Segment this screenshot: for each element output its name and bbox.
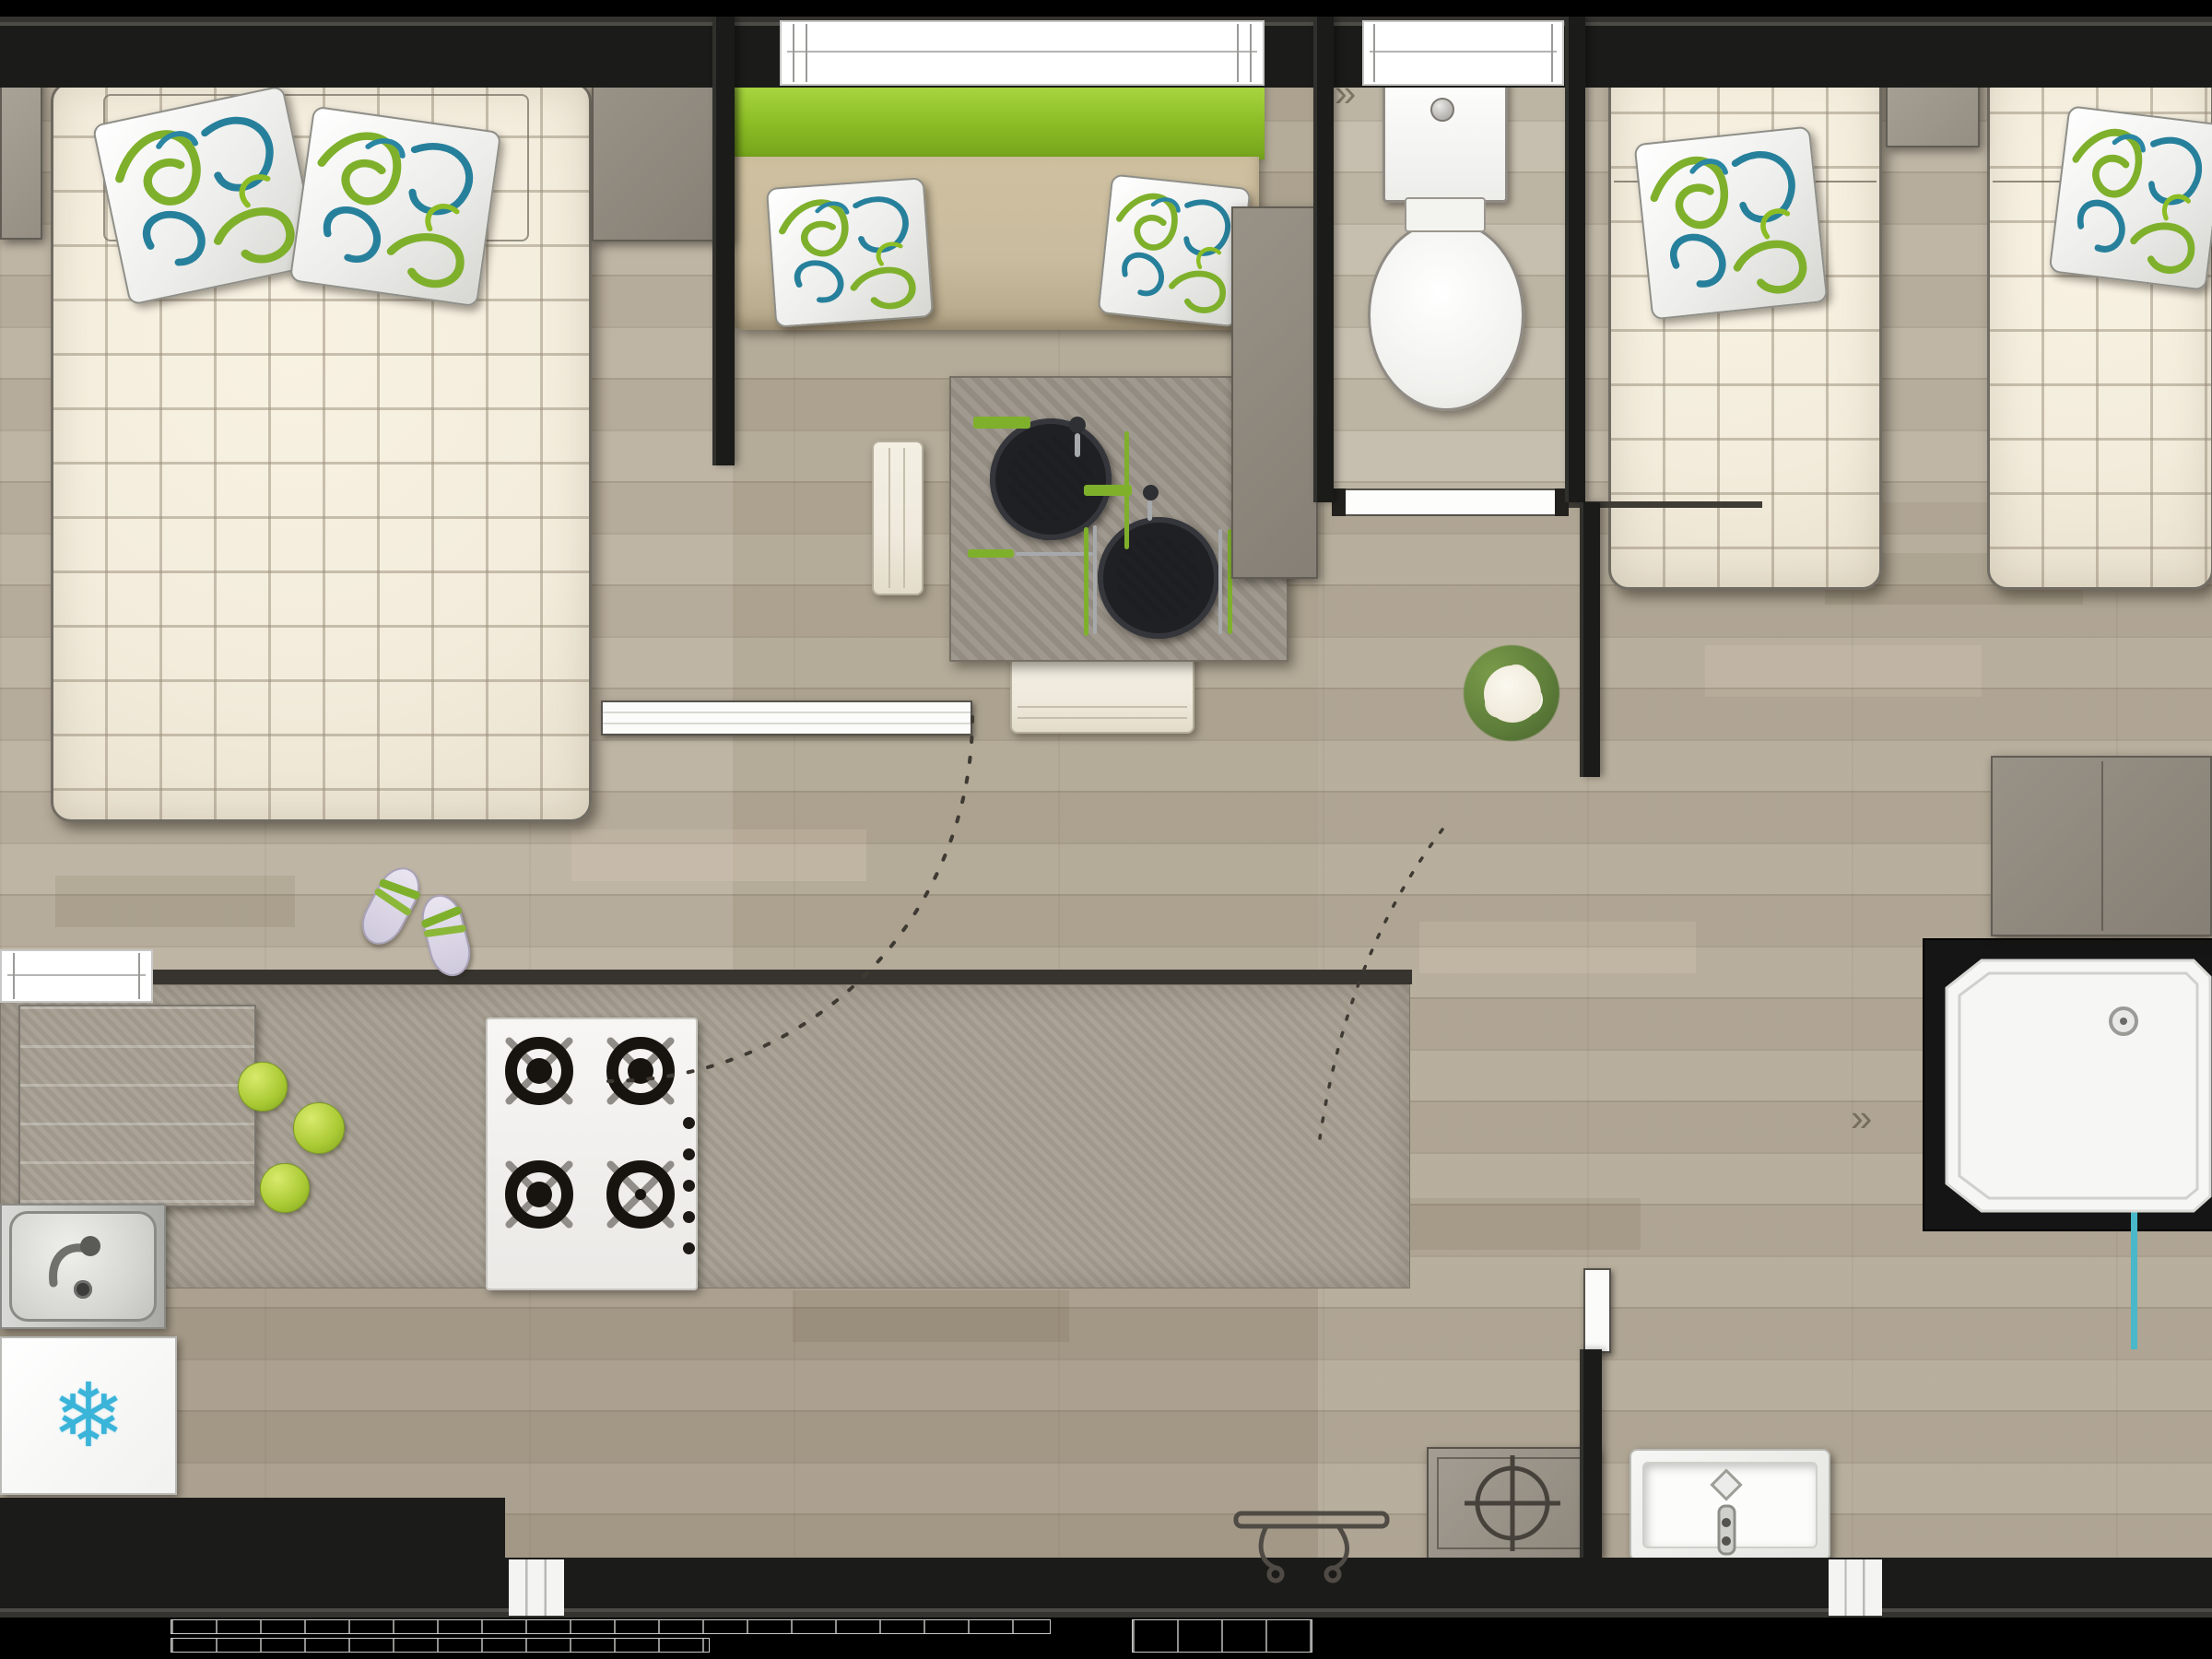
toilet-bowl bbox=[1368, 219, 1524, 411]
fridge: ❄ bbox=[0, 1336, 177, 1495]
toilet-wall-left bbox=[1313, 17, 1334, 502]
pillow-pattern-icon bbox=[1100, 176, 1250, 326]
hob-burner bbox=[598, 1029, 683, 1113]
sofa-backrest bbox=[728, 78, 1265, 159]
sandals bbox=[371, 859, 490, 988]
green-apple bbox=[260, 1163, 310, 1213]
floor-plan: » » bbox=[0, 0, 2212, 1659]
toilet-flush-button bbox=[1430, 98, 1454, 122]
bathroom-sink bbox=[1630, 1449, 1830, 1561]
burner-core bbox=[526, 1182, 552, 1207]
floor-chevron-mark: » bbox=[1851, 1099, 1866, 1137]
window-frame bbox=[1551, 24, 1553, 82]
plank-shadow bbox=[793, 1290, 1069, 1342]
hob-knob bbox=[683, 1211, 695, 1223]
cabinet-door-line bbox=[2101, 761, 2103, 931]
plank-shadow bbox=[55, 876, 295, 927]
window-frame bbox=[1373, 24, 1375, 82]
shower-pipe bbox=[2131, 1169, 2137, 1349]
window-frame bbox=[806, 24, 807, 82]
knife bbox=[1218, 529, 1222, 634]
window-frame bbox=[793, 24, 794, 82]
burner-core bbox=[635, 1189, 646, 1200]
hob-burner-small bbox=[598, 1152, 683, 1237]
napkin bbox=[1084, 485, 1132, 496]
hallway-wall bbox=[1580, 502, 1600, 777]
water-heater-panel bbox=[1437, 1457, 1588, 1549]
spoon-handle bbox=[1147, 500, 1152, 521]
hob-knob bbox=[683, 1117, 695, 1129]
rear-threshold bbox=[1829, 1559, 1882, 1616]
bathroom-wardrobe bbox=[1991, 756, 2212, 936]
window-frame bbox=[138, 953, 140, 999]
pillow-pattern-icon bbox=[768, 179, 932, 325]
dimension-strip bbox=[171, 1638, 710, 1653]
pillow-pattern-icon bbox=[291, 108, 500, 305]
toilet-window bbox=[1362, 20, 1564, 86]
spoon bbox=[1143, 485, 1159, 500]
window-frame bbox=[13, 953, 15, 999]
plank-highlight bbox=[1419, 922, 1696, 973]
dining-bench-left bbox=[872, 441, 924, 595]
pillow-pattern-icon bbox=[1636, 128, 1827, 319]
plate-inner bbox=[1008, 437, 1093, 522]
hob-knob bbox=[683, 1180, 695, 1192]
dimension-strip bbox=[171, 1619, 1051, 1634]
pillow bbox=[1633, 125, 1828, 320]
place-setting-plate bbox=[1098, 517, 1219, 639]
snowflake-icon: ❄ bbox=[52, 1364, 125, 1467]
kitchen-sink-basin bbox=[9, 1211, 157, 1322]
toilet-sliding-door bbox=[1334, 488, 1567, 516]
flower-bouquet-roses bbox=[1484, 665, 1541, 723]
bedroom-partition-wall bbox=[712, 17, 735, 465]
water-heater bbox=[1427, 1447, 1598, 1559]
draining-board bbox=[18, 1005, 256, 1207]
pillow bbox=[289, 106, 502, 308]
sandal bbox=[417, 890, 476, 981]
hob-burner bbox=[497, 1152, 582, 1237]
counter-back-edge bbox=[0, 970, 1412, 984]
hob-knob bbox=[683, 1148, 695, 1160]
bedroom-door-leaf bbox=[601, 700, 972, 735]
window-frame bbox=[1250, 24, 1252, 82]
sink-drain bbox=[74, 1280, 92, 1299]
green-apple bbox=[238, 1062, 288, 1112]
shower-enclosure bbox=[1924, 940, 2212, 1230]
green-apple bbox=[293, 1102, 345, 1154]
pillow-pattern-icon bbox=[2051, 107, 2212, 288]
toilet-wall-right bbox=[1565, 17, 1585, 502]
napkin bbox=[973, 417, 1030, 429]
knife bbox=[968, 549, 1014, 558]
fork bbox=[1093, 525, 1097, 634]
tall-cabinet bbox=[1231, 206, 1318, 579]
plank-highlight bbox=[1705, 645, 1982, 697]
dimension-strip bbox=[1132, 1619, 1312, 1653]
bathroom-sink-basin bbox=[1642, 1462, 1818, 1548]
hob-burner bbox=[497, 1029, 582, 1113]
bottom-wall-left-section bbox=[0, 1498, 505, 1559]
place-setting-plate bbox=[990, 418, 1112, 540]
kitchen-window bbox=[0, 949, 153, 1003]
spoon bbox=[1069, 417, 1086, 433]
plank-highlight bbox=[571, 829, 866, 881]
entrance-threshold bbox=[509, 1559, 564, 1616]
burner-core bbox=[628, 1058, 653, 1084]
pillow bbox=[2049, 105, 2212, 291]
toilet-seat-hinge bbox=[1405, 197, 1486, 232]
bathroom-wall bbox=[1580, 1349, 1602, 1559]
sofa-pillow bbox=[1097, 173, 1251, 327]
fork-handle bbox=[1084, 527, 1088, 636]
window-frame bbox=[1237, 24, 1239, 82]
knife-blade bbox=[1016, 552, 1093, 556]
burner-core bbox=[526, 1058, 552, 1084]
sofa-pillow bbox=[766, 177, 934, 328]
living-room-window bbox=[780, 20, 1265, 86]
hob-knob bbox=[683, 1242, 695, 1254]
pillow-pattern-icon bbox=[94, 88, 319, 304]
spoon-handle bbox=[1075, 433, 1080, 457]
bathroom-door-leaf bbox=[1583, 1268, 1611, 1353]
